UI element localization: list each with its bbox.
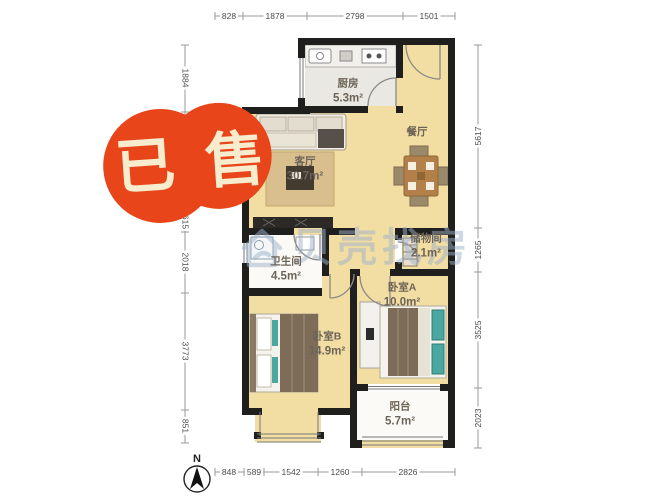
compass-icon <box>184 466 210 492</box>
floorplan-page: 贝壳找房 厨房5.3m² 餐厅 客厅30.7m² 卫生间4.5m² 储物间2.1… <box>0 0 667 500</box>
dim-top-1: 1878 <box>264 12 287 21</box>
dim-right-3: 2023 <box>474 407 483 430</box>
sold-stamp-text: 已售 <box>113 123 278 202</box>
label-living: 客厅30.7m² <box>287 156 323 185</box>
dim-bottom-4: 2826 <box>397 468 420 477</box>
dim-top-2: 2798 <box>344 12 367 21</box>
stove-icon <box>362 49 386 63</box>
kitchen-window <box>298 58 305 98</box>
dim-right-2: 3525 <box>474 319 483 342</box>
dim-left-3: 3773 <box>181 340 190 363</box>
label-kitchen: 厨房5.3m² <box>333 78 363 107</box>
balcony-slider <box>368 384 440 391</box>
bed-bedroom-a <box>360 302 446 378</box>
dim-bottom-0: 848 <box>220 468 238 477</box>
label-bedroom-a: 卧室A10.0m² <box>384 282 420 311</box>
dim-bottom-1: 589 <box>245 468 263 477</box>
label-storage: 储物间2.1m² <box>410 233 442 262</box>
label-bathroom: 卫生间4.5m² <box>270 256 302 285</box>
sold-stamp: 已售 <box>98 100 278 224</box>
dim-right-0: 5617 <box>474 125 483 148</box>
dim-bottom-3: 1260 <box>329 468 352 477</box>
dim-right-1: 1265 <box>474 239 483 262</box>
dim-left-2: 2018 <box>181 251 190 274</box>
dim-top-3: 1501 <box>418 12 441 21</box>
floorplan-drawing <box>0 0 667 500</box>
storage-door <box>395 240 402 262</box>
dim-left-4: 851 <box>181 417 190 435</box>
dim-top-0: 828 <box>220 12 238 21</box>
dim-left-0: 1884 <box>181 67 190 90</box>
sink-icon <box>309 49 331 63</box>
label-dining: 餐厅 <box>407 126 428 140</box>
kitchen-counter <box>305 45 396 67</box>
label-balcony: 阳台5.7m² <box>385 401 415 430</box>
dim-bottom-2: 1542 <box>280 468 303 477</box>
label-bedroom-b: 卧室B14.9m² <box>309 331 345 360</box>
compass-north-label: N <box>193 453 201 465</box>
bathroom-window <box>242 243 249 263</box>
